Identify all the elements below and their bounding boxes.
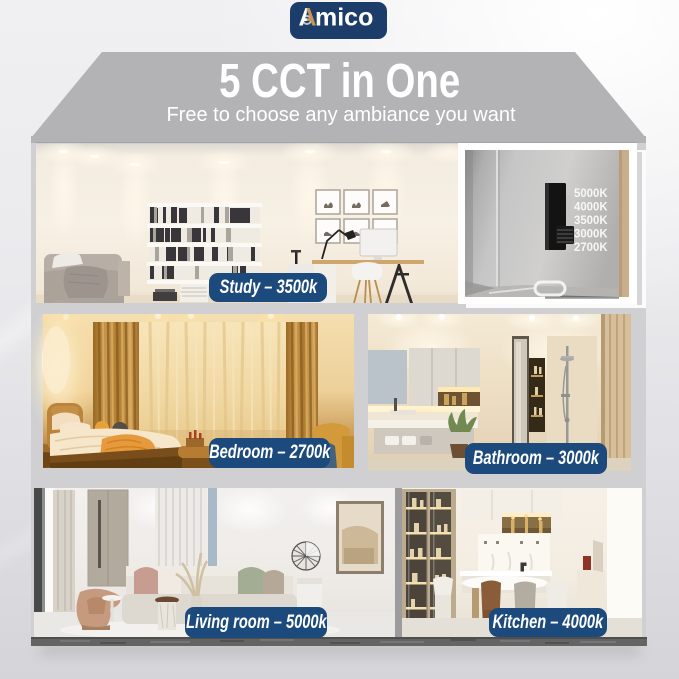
svg-text:2700K: 2700K bbox=[574, 241, 608, 254]
svg-text:4000K: 4000K bbox=[574, 200, 608, 213]
svg-text:5000K: 5000K bbox=[574, 187, 608, 200]
svg-text:mico: mico bbox=[315, 4, 373, 32]
svg-text:A: A bbox=[299, 4, 317, 32]
svg-text:3500K: 3500K bbox=[574, 214, 608, 227]
svg-text:3000K: 3000K bbox=[574, 227, 608, 240]
